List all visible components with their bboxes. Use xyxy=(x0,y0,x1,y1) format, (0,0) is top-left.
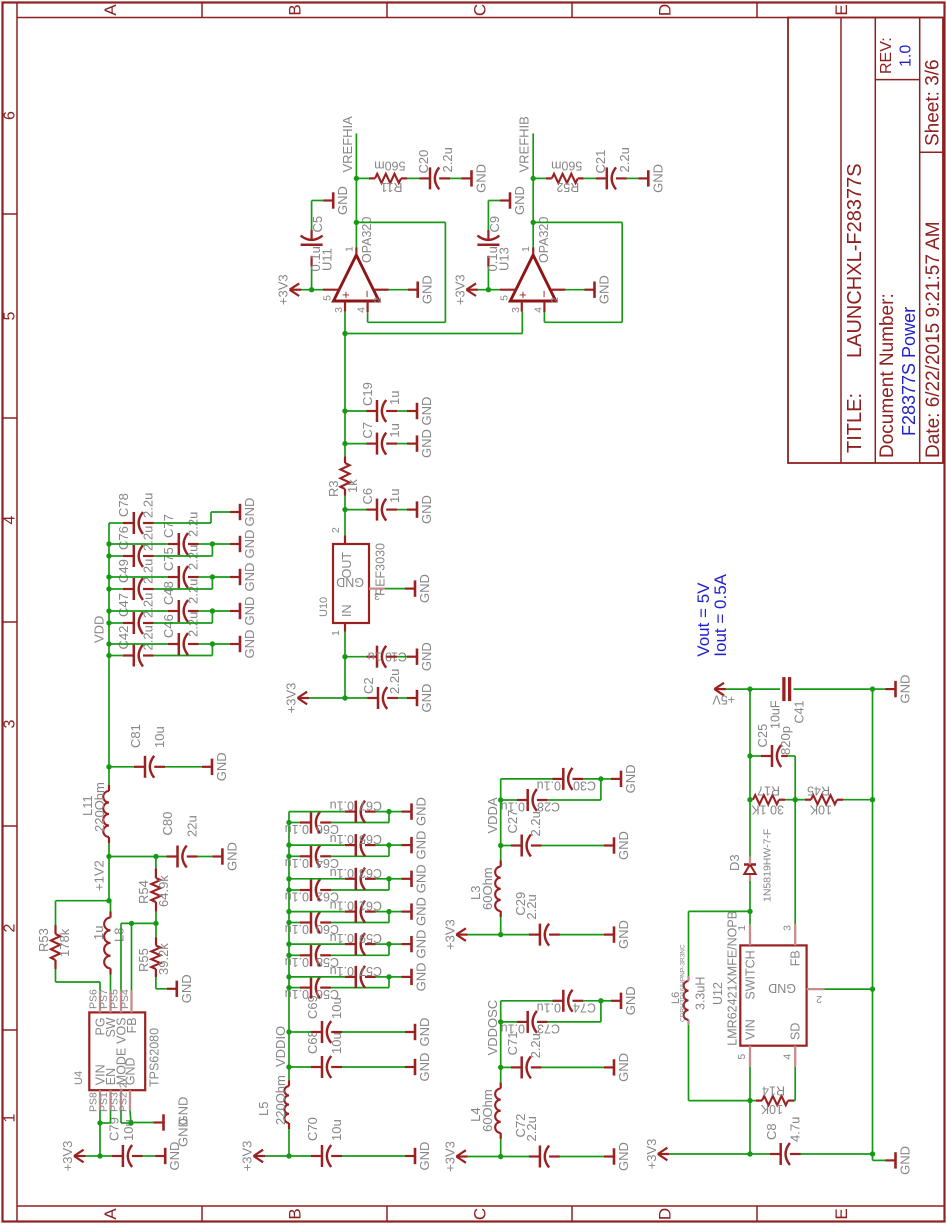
svg-text:U12: U12 xyxy=(711,982,725,1005)
svg-text:VREFHIB: VREFHIB xyxy=(517,116,532,172)
svg-text:L5: L5 xyxy=(256,1102,271,1116)
svg-text:3: 3 xyxy=(781,925,793,931)
svg-text:1u: 1u xyxy=(91,926,106,940)
svg-text:C60: C60 xyxy=(316,922,339,936)
svg-text:GND: GND xyxy=(176,1097,191,1126)
svg-text:Sheet: 3/6: Sheet: 3/6 xyxy=(923,59,944,146)
svg-text:0.1u: 0.1u xyxy=(501,800,525,814)
svg-text:60Ohm: 60Ohm xyxy=(480,1089,495,1132)
svg-text:6: 6 xyxy=(2,111,19,120)
svg-text:R3: R3 xyxy=(326,480,341,497)
svg-text:C70: C70 xyxy=(305,1117,320,1141)
svg-text:2: 2 xyxy=(549,297,561,303)
svg-text:4.7u: 4.7u xyxy=(788,1117,803,1142)
svg-text:0.1u: 0.1u xyxy=(285,890,309,904)
svg-text:1: 1 xyxy=(520,246,532,252)
svg-text:2.2u: 2.2u xyxy=(440,147,455,172)
svg-text:R45: R45 xyxy=(807,784,830,798)
svg-text:GND: GND xyxy=(898,675,913,704)
svg-text:220Ohm: 220Ohm xyxy=(273,1075,288,1125)
svg-text:3: 3 xyxy=(510,307,522,313)
svg-text:GND: GND xyxy=(419,642,434,671)
svg-text:0.1u: 0.1u xyxy=(285,922,309,936)
svg-text:2.2u: 2.2u xyxy=(186,545,201,570)
svg-text:GND: GND xyxy=(414,897,429,926)
svg-text:+: + xyxy=(515,291,530,299)
svg-text:2.2u: 2.2u xyxy=(528,811,543,836)
svg-text:PS2*2: PS2*2 xyxy=(118,1082,130,1112)
svg-text:2.2u: 2.2u xyxy=(141,493,156,518)
svg-text:OPA320: OPA320 xyxy=(360,217,374,263)
svg-text:1u: 1u xyxy=(387,423,402,437)
svg-text:C42: C42 xyxy=(116,626,131,650)
svg-text:R54: R54 xyxy=(136,880,151,904)
svg-text:A: A xyxy=(101,4,120,16)
svg-text:22u: 22u xyxy=(185,815,200,837)
svg-text:OUT: OUT xyxy=(340,552,354,579)
svg-text:C64: C64 xyxy=(316,856,339,870)
svg-text:10K: 10K xyxy=(760,1102,783,1116)
svg-text:GND: GND xyxy=(242,597,257,626)
svg-text:C62: C62 xyxy=(316,890,339,904)
svg-text:C73: C73 xyxy=(537,1021,560,1035)
svg-text:CDRH3D16/HPNP-3R3NC: CDRH3D16/HPNP-3R3NC xyxy=(680,944,687,1022)
svg-text:GND: GND xyxy=(419,495,434,524)
svg-text:VDDA: VDDA xyxy=(485,797,500,833)
svg-text:D: D xyxy=(656,1208,675,1220)
svg-text:3.3uH: 3.3uH xyxy=(694,977,708,1010)
svg-text:10u: 10u xyxy=(329,1032,344,1054)
svg-text:GND: GND xyxy=(616,1053,631,1082)
svg-text:1.0: 1.0 xyxy=(898,45,915,67)
svg-text:GND: GND xyxy=(414,831,429,860)
svg-text:U13: U13 xyxy=(496,247,511,271)
svg-text:C30: C30 xyxy=(573,778,596,792)
svg-text:10K: 10K xyxy=(809,803,832,817)
svg-text:GND: GND xyxy=(419,429,434,458)
svg-text:C80: C80 xyxy=(160,812,175,836)
svg-text:L8: L8 xyxy=(112,928,127,942)
svg-text:LMR62421XMFE/NOPB: LMR62421XMFE/NOPB xyxy=(726,911,740,1046)
svg-text:C74: C74 xyxy=(573,1000,596,1014)
svg-text:2: 2 xyxy=(2,923,19,932)
svg-text:GND: GND xyxy=(597,275,612,304)
svg-text:3: 3 xyxy=(333,307,345,313)
svg-text:2.2u: 2.2u xyxy=(141,526,156,551)
svg-text:560m: 560m xyxy=(551,159,582,173)
svg-text:GND: GND xyxy=(650,164,665,193)
svg-text:FB: FB xyxy=(125,1017,139,1033)
svg-text:IN: IN xyxy=(340,605,354,618)
svg-text:+3V3: +3V3 xyxy=(644,1139,659,1170)
svg-text:−: − xyxy=(536,290,551,298)
svg-text:VDDOSC: VDDOSC xyxy=(485,1000,500,1056)
svg-text:1k: 1k xyxy=(345,479,360,493)
svg-text:GND: GND xyxy=(336,575,364,589)
svg-text:4: 4 xyxy=(356,307,368,313)
svg-text:GND: GND xyxy=(474,164,489,193)
svg-text:GND: GND xyxy=(768,981,796,995)
svg-text:GND: GND xyxy=(124,1057,138,1085)
svg-text:Document Number:: Document Number: xyxy=(877,293,898,458)
svg-text:C8: C8 xyxy=(764,1123,779,1140)
svg-text:GND: GND xyxy=(414,930,429,959)
svg-text:C19: C19 xyxy=(360,382,375,406)
svg-text:C58: C58 xyxy=(316,955,339,969)
svg-text:GND: GND xyxy=(616,831,631,860)
svg-text:R11: R11 xyxy=(380,180,402,194)
svg-text:1: 1 xyxy=(330,630,342,636)
svg-text:U10: U10 xyxy=(318,597,330,617)
svg-text:C77: C77 xyxy=(161,514,176,538)
svg-text:VREFHIA: VREFHIA xyxy=(340,116,355,173)
svg-text:U4: U4 xyxy=(73,1071,85,1085)
svg-text:1u: 1u xyxy=(387,489,402,503)
svg-text:2.2u: 2.2u xyxy=(524,894,539,919)
svg-text:1N5819HW-7-F: 1N5819HW-7-F xyxy=(762,829,774,902)
svg-text:10uF: 10uF xyxy=(769,700,783,729)
svg-text:GND: GND xyxy=(419,397,434,426)
svg-text:5: 5 xyxy=(2,311,19,320)
svg-text:C68: C68 xyxy=(305,1030,320,1054)
svg-text:3: 3 xyxy=(2,719,19,728)
svg-text:2: 2 xyxy=(372,297,384,303)
svg-text:E: E xyxy=(832,4,851,15)
svg-text:0.1u: 0.1u xyxy=(537,1000,561,1014)
svg-text:0.1u: 0.1u xyxy=(285,987,309,1001)
svg-text:C28: C28 xyxy=(537,800,560,814)
svg-text:2.2u: 2.2u xyxy=(141,625,156,650)
svg-text:R53: R53 xyxy=(36,928,51,952)
svg-text:39.2k: 39.2k xyxy=(156,943,171,975)
svg-text:820p: 820p xyxy=(778,726,793,755)
svg-text:C9: C9 xyxy=(487,216,502,233)
svg-text:2: 2 xyxy=(816,993,822,1005)
svg-text:2.2u: 2.2u xyxy=(186,512,201,537)
svg-text:OPA320: OPA320 xyxy=(537,217,551,263)
svg-text:5: 5 xyxy=(322,295,334,301)
svg-text:GND: GND xyxy=(417,574,432,603)
svg-text:C: C xyxy=(471,4,490,16)
svg-text:C75: C75 xyxy=(161,547,176,571)
svg-text:U11: U11 xyxy=(320,248,335,271)
svg-text:C2: C2 xyxy=(361,677,376,694)
svg-text:R17: R17 xyxy=(757,784,780,798)
svg-text:SWITCH: SWITCH xyxy=(744,950,758,999)
svg-text:GND: GND xyxy=(420,275,435,304)
svg-text:GND: GND xyxy=(242,630,257,659)
svg-text:560m: 560m xyxy=(374,159,405,173)
svg-text:4: 4 xyxy=(2,515,19,524)
svg-text:+3V3: +3V3 xyxy=(60,1141,75,1172)
svg-text:2.2u: 2.2u xyxy=(524,1116,539,1141)
svg-text:+5V: +5V xyxy=(712,693,735,707)
svg-text:GND: GND xyxy=(224,842,239,871)
svg-text:C47: C47 xyxy=(116,593,131,617)
svg-text:B: B xyxy=(286,1208,305,1219)
svg-text:GND: GND xyxy=(417,1142,432,1171)
svg-text:C20: C20 xyxy=(416,150,431,174)
svg-text:GND: GND xyxy=(414,797,429,826)
svg-text:C79: C79 xyxy=(106,1117,121,1141)
svg-text:+3V3: +3V3 xyxy=(452,274,467,305)
svg-text:C21: C21 xyxy=(593,150,608,174)
svg-text:Date: 6/22/2015 9:21:57 AM: Date: 6/22/2015 9:21:57 AM xyxy=(923,221,944,458)
svg-text:C7: C7 xyxy=(360,422,375,439)
svg-text:2.2u: 2.2u xyxy=(617,147,632,172)
svg-text:REV:: REV: xyxy=(878,37,895,74)
svg-text:GND: GND xyxy=(419,684,434,713)
svg-text:TITLE:: TITLE: xyxy=(844,393,866,453)
svg-text:GND: GND xyxy=(242,563,257,592)
svg-text:64.9k: 64.9k xyxy=(156,875,171,907)
svg-text:SD: SD xyxy=(789,1023,803,1040)
svg-text:C5: C5 xyxy=(310,216,325,233)
svg-text:B: B xyxy=(286,4,305,15)
svg-text:2.2u: 2.2u xyxy=(186,579,201,604)
svg-text:+: + xyxy=(338,291,353,299)
svg-text:GND: GND xyxy=(898,1146,913,1175)
svg-text:GND: GND xyxy=(616,1142,631,1171)
svg-text:0.1u: 0.1u xyxy=(285,822,309,836)
svg-text:D3: D3 xyxy=(727,854,742,871)
svg-text:GND: GND xyxy=(242,498,257,527)
svg-text:R52: R52 xyxy=(556,180,579,194)
svg-text:5: 5 xyxy=(498,295,510,301)
svg-text:GND: GND xyxy=(512,186,527,215)
svg-text:+3V3: +3V3 xyxy=(442,1141,457,1172)
svg-text:GND: GND xyxy=(623,764,638,793)
svg-text:VDDIO: VDDIO xyxy=(273,1026,288,1067)
svg-text:220Ohm: 220Ohm xyxy=(92,782,107,832)
svg-text:0.1u: 0.1u xyxy=(330,799,354,813)
svg-text:2.2u: 2.2u xyxy=(186,612,201,637)
svg-text:C6: C6 xyxy=(360,488,375,505)
svg-text:GND: GND xyxy=(414,962,429,991)
svg-text:R14: R14 xyxy=(762,1084,785,1098)
svg-text:LAUNCHXL-F28377S: LAUNCHXL-F28377S xyxy=(844,163,866,358)
svg-text:+3V3: +3V3 xyxy=(284,683,299,714)
svg-text:GND: GND xyxy=(179,974,194,1003)
svg-text:60Ohm: 60Ohm xyxy=(480,867,495,910)
svg-text:GND: GND xyxy=(214,752,229,781)
svg-text:1: 1 xyxy=(343,246,355,252)
svg-text:GND: GND xyxy=(242,530,257,559)
svg-text:E: E xyxy=(832,1208,851,1219)
svg-text:C49: C49 xyxy=(116,559,131,583)
svg-text:R55: R55 xyxy=(136,948,151,972)
svg-text:GND: GND xyxy=(417,1018,432,1047)
svg-text:C48: C48 xyxy=(161,581,176,605)
svg-text:0.1u: 0.1u xyxy=(285,856,309,870)
svg-text:A: A xyxy=(101,1208,120,1220)
svg-text:4: 4 xyxy=(532,307,544,313)
svg-text:C66: C66 xyxy=(316,822,339,836)
svg-text:2.2u: 2.2u xyxy=(528,1033,543,1058)
svg-text:3: 3 xyxy=(374,590,380,602)
svg-text:C: C xyxy=(471,1208,490,1220)
svg-text:D: D xyxy=(656,4,675,16)
svg-text:C81: C81 xyxy=(128,724,143,748)
svg-text:C41: C41 xyxy=(793,700,807,723)
svg-text:10u: 10u xyxy=(329,1119,344,1141)
svg-text:−: − xyxy=(360,290,375,298)
svg-text:PS4: PS4 xyxy=(119,989,131,1009)
svg-text:30.1K: 30.1K xyxy=(751,803,784,817)
svg-text:TPS62080: TPS62080 xyxy=(148,1028,162,1087)
svg-text:C78: C78 xyxy=(116,493,131,517)
svg-text:Iout = 0.5A: Iout = 0.5A xyxy=(711,573,730,656)
svg-text:2.2u: 2.2u xyxy=(387,669,402,694)
svg-text:C76: C76 xyxy=(116,526,131,550)
svg-text:178k: 178k xyxy=(57,928,72,957)
svg-text:2.2u: 2.2u xyxy=(141,559,156,584)
svg-text:4: 4 xyxy=(781,1054,793,1060)
svg-text:GND: GND xyxy=(417,1053,432,1082)
svg-text:+1V2: +1V2 xyxy=(92,860,107,891)
svg-text:GND: GND xyxy=(414,864,429,893)
svg-text:10u: 10u xyxy=(152,726,167,748)
svg-text:GND: GND xyxy=(335,186,350,215)
svg-text:0.1u: 0.1u xyxy=(501,1021,525,1035)
svg-text:C46: C46 xyxy=(161,614,176,638)
svg-text:2.2u: 2.2u xyxy=(141,593,156,618)
svg-text:GND: GND xyxy=(623,986,638,1015)
svg-text:F28377S Power: F28377S Power xyxy=(899,307,919,436)
svg-text:C56: C56 xyxy=(316,987,339,1001)
svg-text:0.1u: 0.1u xyxy=(537,778,561,792)
svg-text:GND: GND xyxy=(616,920,631,949)
svg-text:VIN: VIN xyxy=(744,1019,758,1040)
svg-text:1: 1 xyxy=(2,1113,19,1122)
svg-text:+3V3: +3V3 xyxy=(442,919,457,950)
svg-text:0.1u: 0.1u xyxy=(285,955,309,969)
svg-text:1u: 1u xyxy=(387,391,402,405)
svg-text:FB: FB xyxy=(789,950,803,966)
svg-text:+3V3: +3V3 xyxy=(276,274,291,305)
svg-text:5: 5 xyxy=(736,1054,748,1060)
svg-text:+3V3: +3V3 xyxy=(240,1141,255,1172)
svg-text:VDD: VDD xyxy=(92,616,107,643)
svg-text:2: 2 xyxy=(330,527,342,533)
